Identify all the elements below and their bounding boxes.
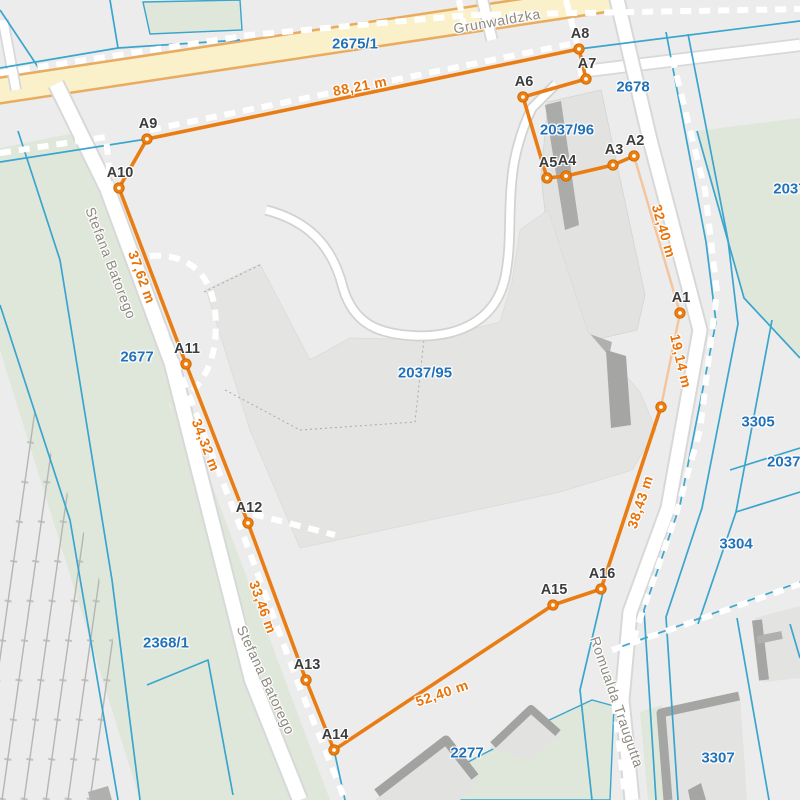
measure-point-center-a16 bbox=[599, 587, 603, 591]
measure-point-center-a2 bbox=[632, 154, 636, 158]
measure-point-center-a8 bbox=[577, 47, 581, 51]
measure-point-center-a3 bbox=[611, 163, 615, 167]
measure-point-center-a10 bbox=[117, 186, 121, 190]
measure-point-center-a12 bbox=[246, 521, 250, 525]
map-canvas[interactable] bbox=[0, 0, 800, 800]
map-viewport: A1A2A3A4A5A6A7A8A9A10A11A12A13A14A15A168… bbox=[0, 0, 800, 800]
measure-point-center-a14 bbox=[332, 748, 336, 752]
measure-point-center-a4 bbox=[564, 174, 568, 178]
measure-point-center-a1 bbox=[678, 311, 682, 315]
measure-point-center-a11 bbox=[184, 362, 188, 366]
measure-point-center-a9 bbox=[145, 137, 149, 141]
measure-point-center-v1 bbox=[659, 405, 663, 409]
measure-point-center-a13 bbox=[304, 678, 308, 682]
measure-point-center-a6 bbox=[521, 95, 525, 99]
measure-point-center-a15 bbox=[551, 603, 555, 607]
measure-point-center-a5 bbox=[545, 176, 549, 180]
measure-point-center-a7 bbox=[584, 77, 588, 81]
